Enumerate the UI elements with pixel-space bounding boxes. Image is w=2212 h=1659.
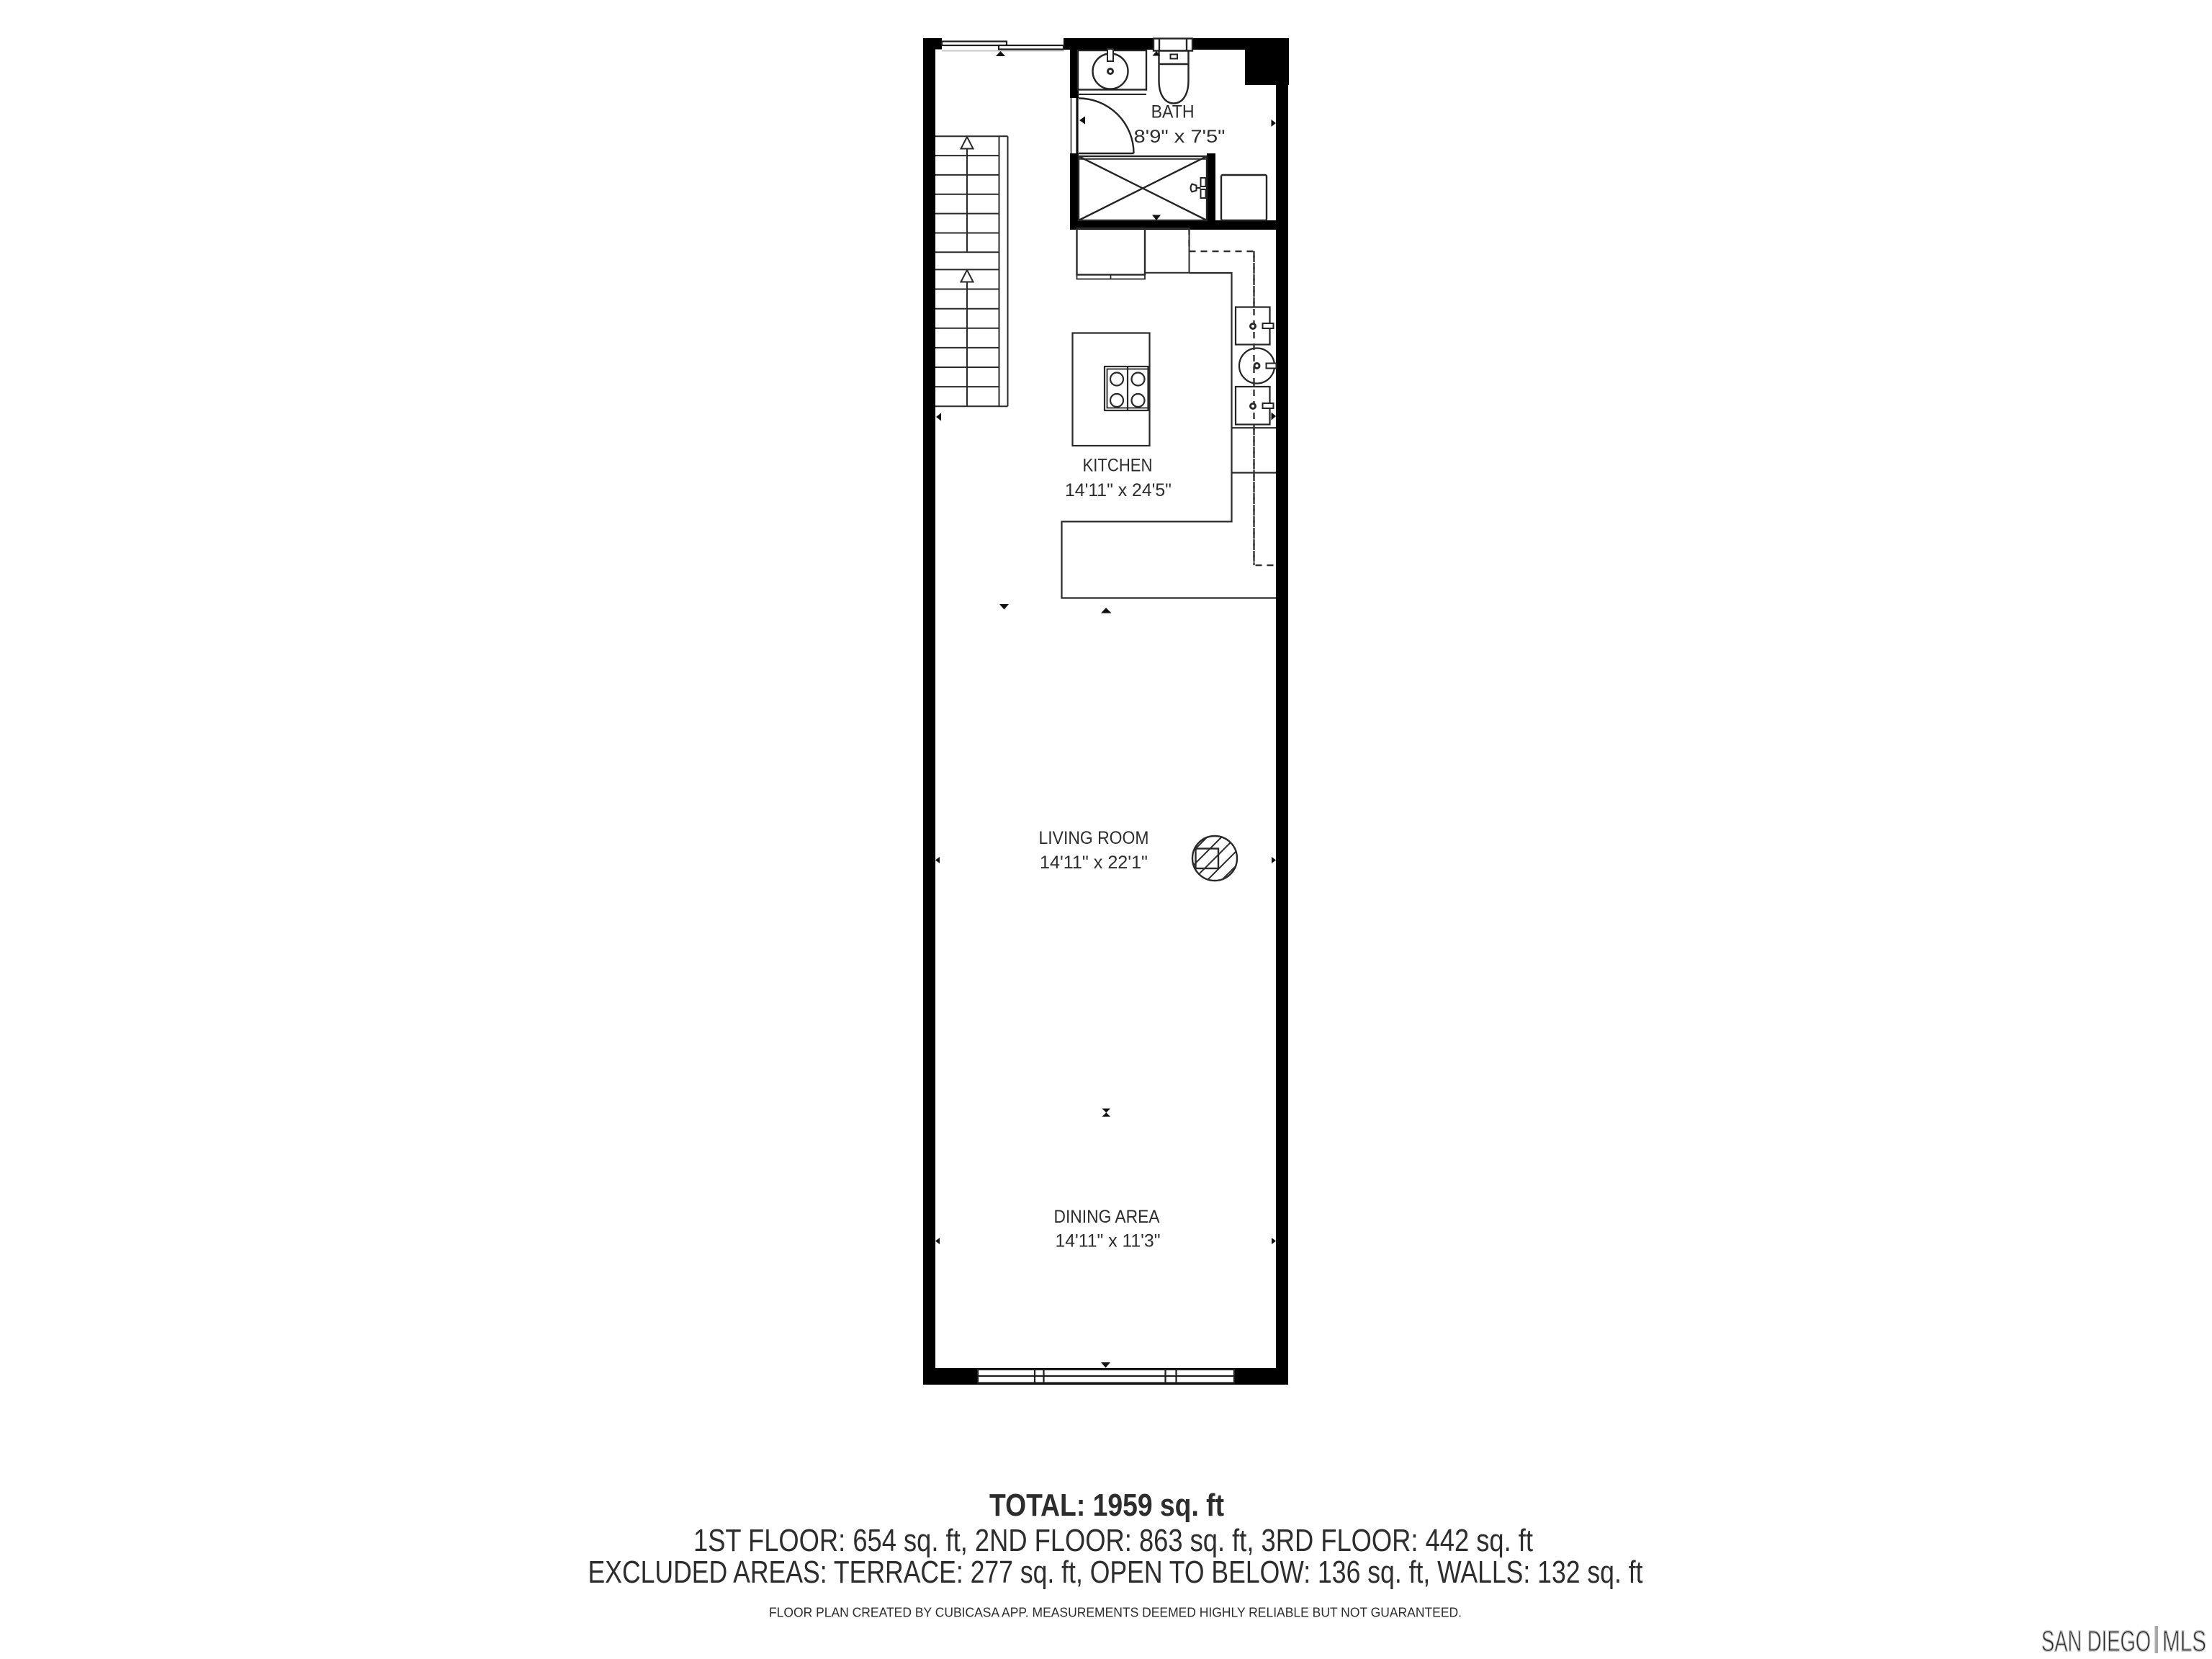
- svg-text:14'11" x 24'5": 14'11" x 24'5": [1065, 480, 1172, 500]
- svg-text:FLOOR PLAN CREATED BY CUBICASA: FLOOR PLAN CREATED BY CUBICASA APP. MEAS…: [769, 1605, 1462, 1620]
- svg-text:KITCHEN: KITCHEN: [1083, 456, 1153, 476]
- svg-text:SAN DIEGO: SAN DIEGO: [2041, 1624, 2151, 1658]
- svg-text:14'11" x 11'3": 14'11" x 11'3": [1056, 1231, 1161, 1251]
- svg-text:MLS: MLS: [2162, 1624, 2206, 1658]
- svg-text:8'9" x 7'5": 8'9" x 7'5": [1134, 127, 1226, 147]
- svg-text:1ST FLOOR: 654 sq. ft, 2ND FLO: 1ST FLOOR: 654 sq. ft, 2ND FLOOR: 863 sq…: [693, 1523, 1533, 1558]
- svg-text:DINING AREA: DINING AREA: [1054, 1207, 1160, 1227]
- svg-text:14'11" x 22'1": 14'11" x 22'1": [1040, 853, 1148, 873]
- svg-text:LIVING ROOM: LIVING ROOM: [1039, 828, 1149, 848]
- svg-text:BATH: BATH: [1151, 102, 1195, 122]
- svg-text:EXCLUDED AREAS: TERRACE: 277 s: EXCLUDED AREAS: TERRACE: 277 sq. ft, OPE…: [588, 1555, 1643, 1590]
- svg-text:TOTAL: 1959 sq. ft: TOTAL: 1959 sq. ft: [989, 1488, 1224, 1523]
